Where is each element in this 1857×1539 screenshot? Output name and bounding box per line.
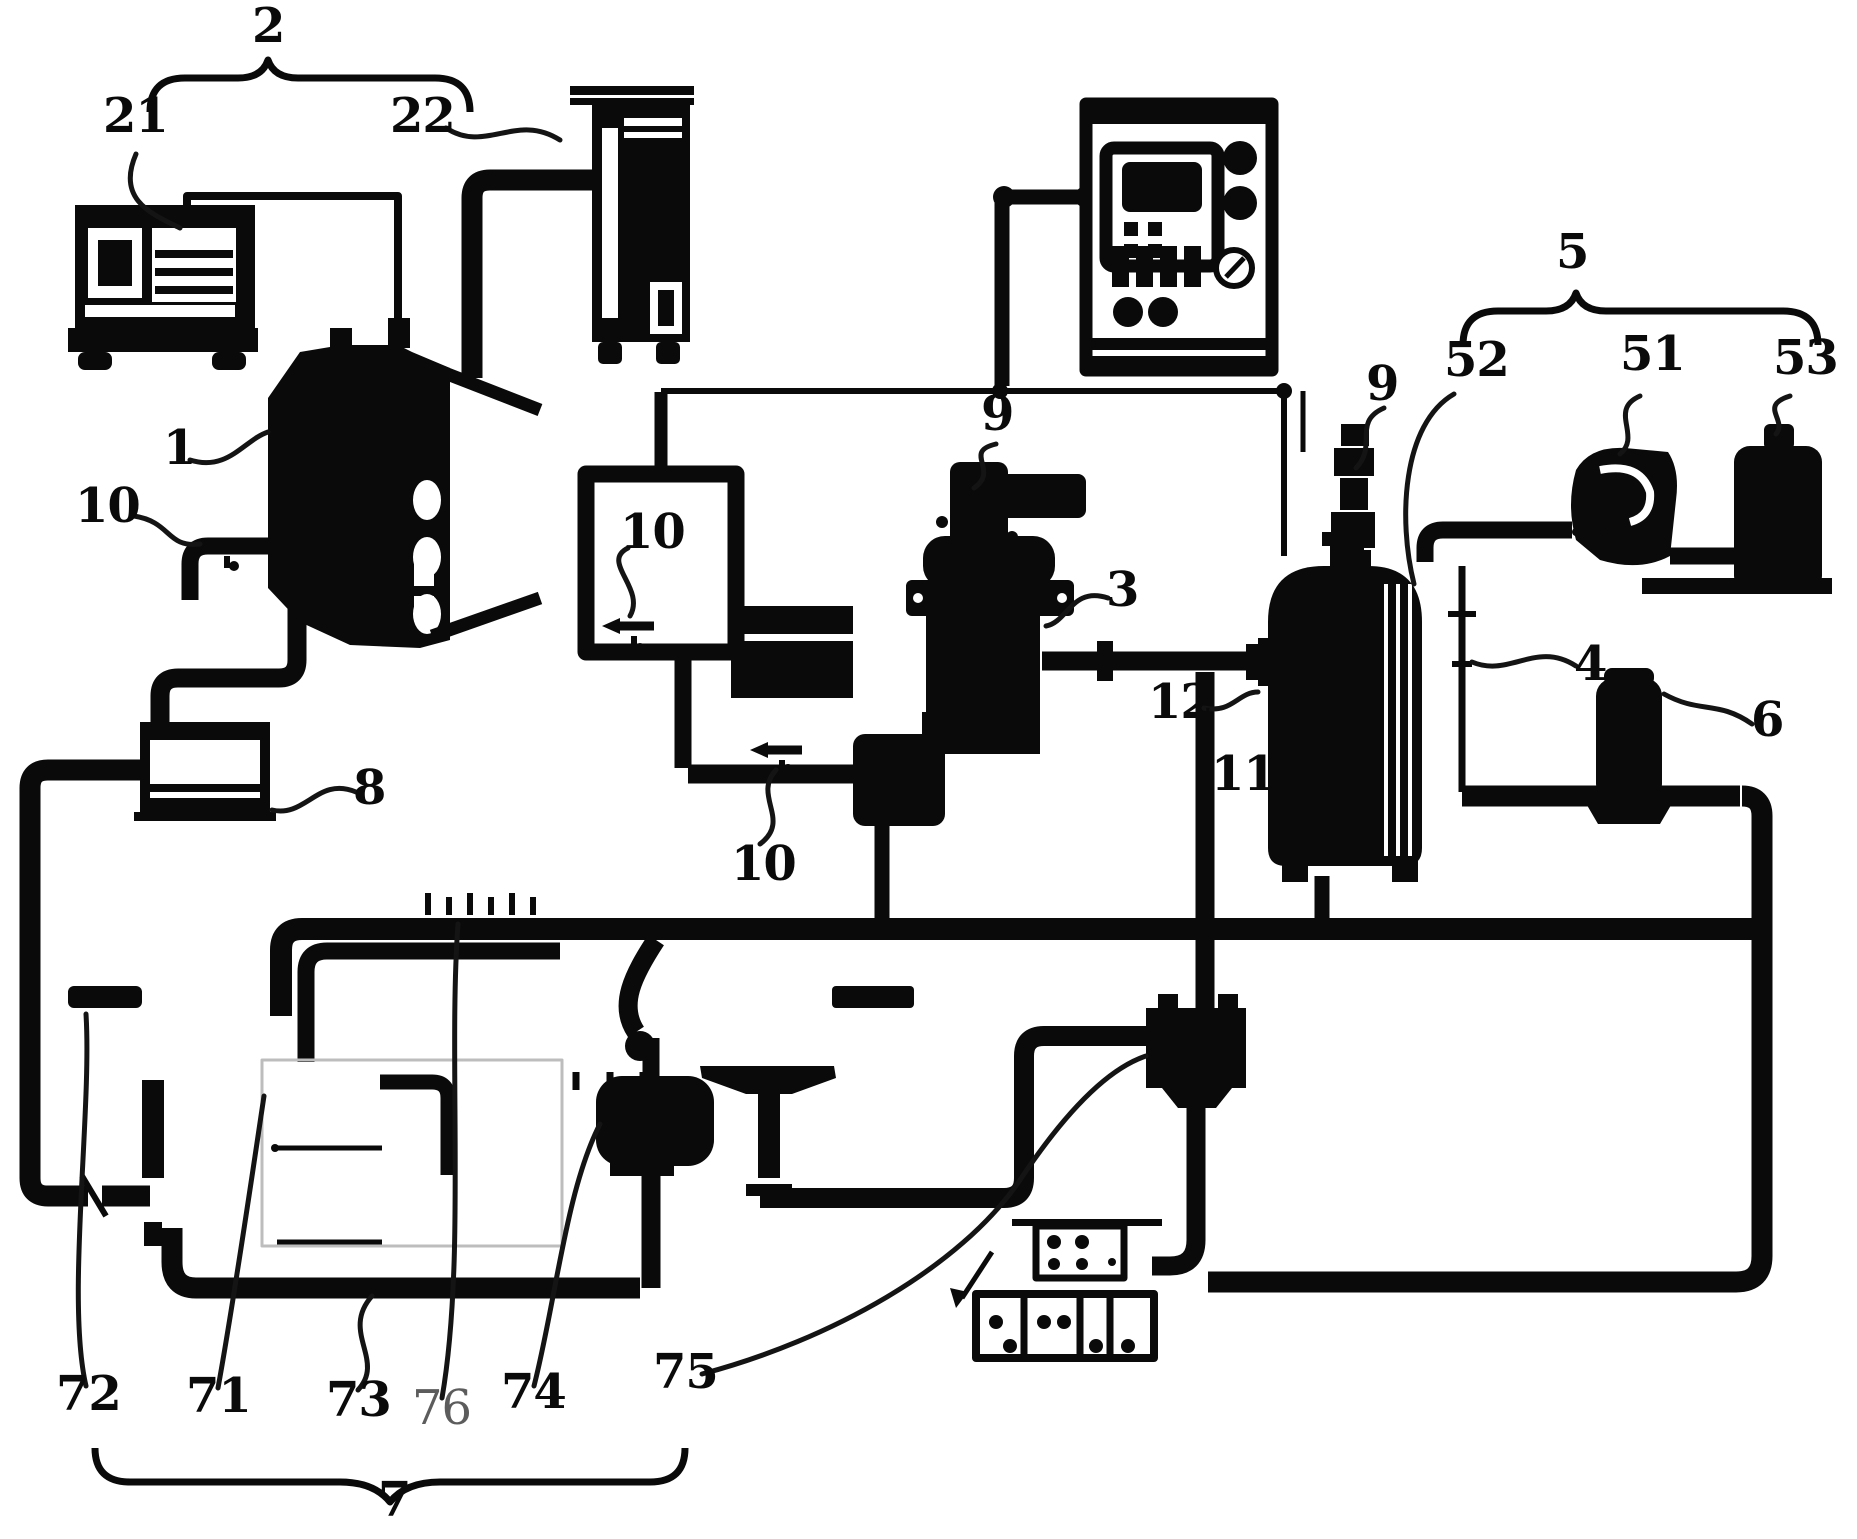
pipe-funnel-to-valvebox [760, 1036, 1148, 1198]
panel-knob [1223, 141, 1257, 175]
dip-flange [625, 1031, 655, 1061]
ref-label-9a: 9 [981, 390, 1013, 438]
ref-label-21: 21 [103, 92, 168, 140]
mid-stub-bar [832, 986, 914, 1008]
dyno-computer [68, 205, 258, 370]
ref-label-5: 5 [1556, 228, 1588, 276]
leader-4 [1472, 657, 1576, 666]
ref-label-76: 76 [412, 1384, 471, 1432]
pipe-panel [1002, 197, 1088, 386]
port-flange-12 [1258, 638, 1272, 686]
ref-label-75: 75 [653, 1348, 718, 1396]
valve-block-75 [1146, 994, 1246, 1108]
nozzle-ticks [428, 893, 533, 915]
filler-funnel-76 [700, 1066, 836, 1178]
filter-vessel-3 [853, 462, 1086, 826]
agitator-motor-head [950, 462, 1008, 548]
pipe-cabinet-to-duct [472, 180, 594, 378]
pipe-inner-elbow [306, 951, 560, 1062]
junction-dot [993, 186, 1015, 208]
leader-10a [134, 516, 200, 544]
leader-74 [534, 1124, 600, 1386]
pipe-valvebox-down [1152, 1086, 1196, 1266]
ref-label-10a: 10 [75, 482, 140, 530]
pipe-11-to-51 [1425, 530, 1572, 562]
ref-label-1: 1 [163, 424, 195, 472]
leader-51 [1620, 396, 1640, 454]
leader-6 [1664, 694, 1752, 724]
pipe-dip [628, 940, 656, 1032]
return-stub-72 [68, 986, 142, 1008]
ref-label-3: 3 [1106, 566, 1138, 614]
leader-71 [218, 1096, 264, 1388]
panel-button [1113, 297, 1143, 327]
pipe-main-long [281, 929, 1762, 1016]
ref-label-74: 74 [501, 1368, 566, 1416]
blower-51 [1558, 448, 1677, 565]
oil-tank-71 [142, 1060, 562, 1246]
panel-screen [1122, 162, 1202, 212]
tank-left-stub-upper [142, 1080, 164, 1178]
engine-block [268, 318, 540, 648]
panel-knob [1223, 186, 1257, 220]
funnel-stem-coupling [746, 1184, 792, 1196]
ref-label-2: 2 [252, 2, 284, 50]
leader-8 [272, 788, 356, 811]
leader-1 [190, 432, 268, 463]
pipe-engine-to-8 [190, 546, 272, 600]
ref-label-9b: 9 [1366, 360, 1398, 408]
patent-diagram-page: 2212211010109312119525515346872717376747… [0, 0, 1857, 1539]
panel-button [1148, 297, 1178, 327]
control-panel [1086, 104, 1272, 370]
ref-label-8: 8 [353, 764, 385, 812]
heat-exchanger [731, 606, 853, 698]
ref-label-71: 71 [186, 1372, 251, 1420]
control-terminal-boxes [950, 1219, 1162, 1358]
cooling-cabinet [570, 86, 694, 364]
ref-label-10c: 10 [731, 840, 796, 888]
ref-label-73: 73 [326, 1376, 391, 1424]
pump-74 [596, 1076, 714, 1176]
pipe-8-to-tank [30, 770, 150, 1196]
ref-label-51: 51 [1620, 330, 1685, 378]
ref-label-4: 4 [1574, 640, 1606, 688]
vessel3-bottom-flange [853, 734, 945, 826]
ref-label-6: 6 [1751, 696, 1783, 744]
ref-label-52: 52 [1444, 336, 1509, 384]
ref-label-72: 72 [56, 1370, 121, 1418]
ref-label-10b: 10 [620, 508, 685, 556]
ref-label-22: 22 [390, 92, 455, 140]
leader-22 [446, 128, 560, 140]
pipe-tank-internal [380, 1082, 448, 1175]
ref-label-7: 7 [378, 1476, 410, 1524]
ref-label-11: 11 [1211, 750, 1276, 798]
tank-left-stub-lower [144, 1222, 162, 1246]
ref-label-53: 53 [1773, 334, 1838, 382]
device-8 [134, 722, 276, 821]
ref-label-12: 12 [1148, 678, 1213, 726]
